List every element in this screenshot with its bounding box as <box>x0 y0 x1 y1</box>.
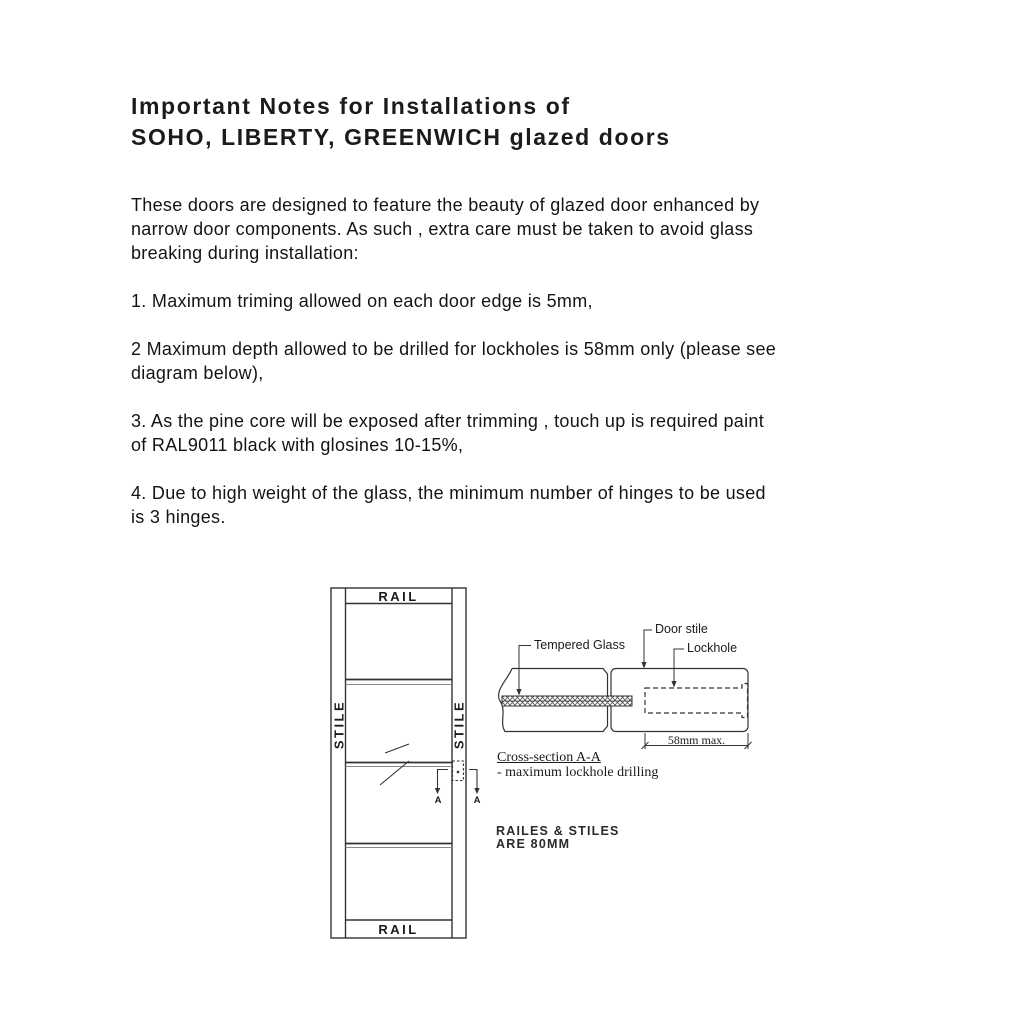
section-marker-left-arrow <box>435 788 440 794</box>
lockhole-label: Lockhole <box>687 641 737 655</box>
rails-stiles-note: RAILES & STILES ARE 80MM <box>496 825 620 851</box>
section-a-label-right: A <box>472 795 482 806</box>
leader-tempered-glass <box>519 646 531 691</box>
door-technical-diagram <box>0 0 1024 1024</box>
door-stile-label: Door stile <box>655 622 708 636</box>
section-marker-right-arrow <box>474 788 479 794</box>
rail-top-label: RAIL <box>331 589 466 604</box>
leader-tempered-glass-arrow <box>516 689 521 696</box>
section-a-label-left: A <box>433 795 443 806</box>
cross-section-caption: Cross-section A-A <box>497 750 601 766</box>
dimension-58mm-label: 58mm max. <box>645 733 748 748</box>
leader-lockhole-arrow <box>671 681 676 688</box>
rail-bottom-label: RAIL <box>331 922 466 937</box>
stile-left-label: STILE <box>332 694 347 756</box>
door-elevation <box>331 588 480 938</box>
section-marker-right-line <box>469 770 477 790</box>
lockhole-position-dashed <box>453 761 464 781</box>
lockhole-dashed-outline <box>645 684 748 718</box>
lockhole-dot <box>457 771 459 773</box>
section-marker-left-line <box>438 770 449 790</box>
document-page: Important Notes for Installations of SOH… <box>0 0 1024 1024</box>
stile-right-label: STILE <box>452 694 467 756</box>
tempered-glass-label: Tempered Glass <box>534 638 625 652</box>
leader-door-stile-arrow <box>641 662 646 669</box>
glass-mark-2 <box>380 761 409 785</box>
cross-section-subcaption: - maximum lockhole drilling <box>497 765 658 781</box>
leader-lockhole <box>674 649 684 682</box>
glass-mark-1 <box>385 744 409 753</box>
leader-door-stile <box>644 630 652 663</box>
